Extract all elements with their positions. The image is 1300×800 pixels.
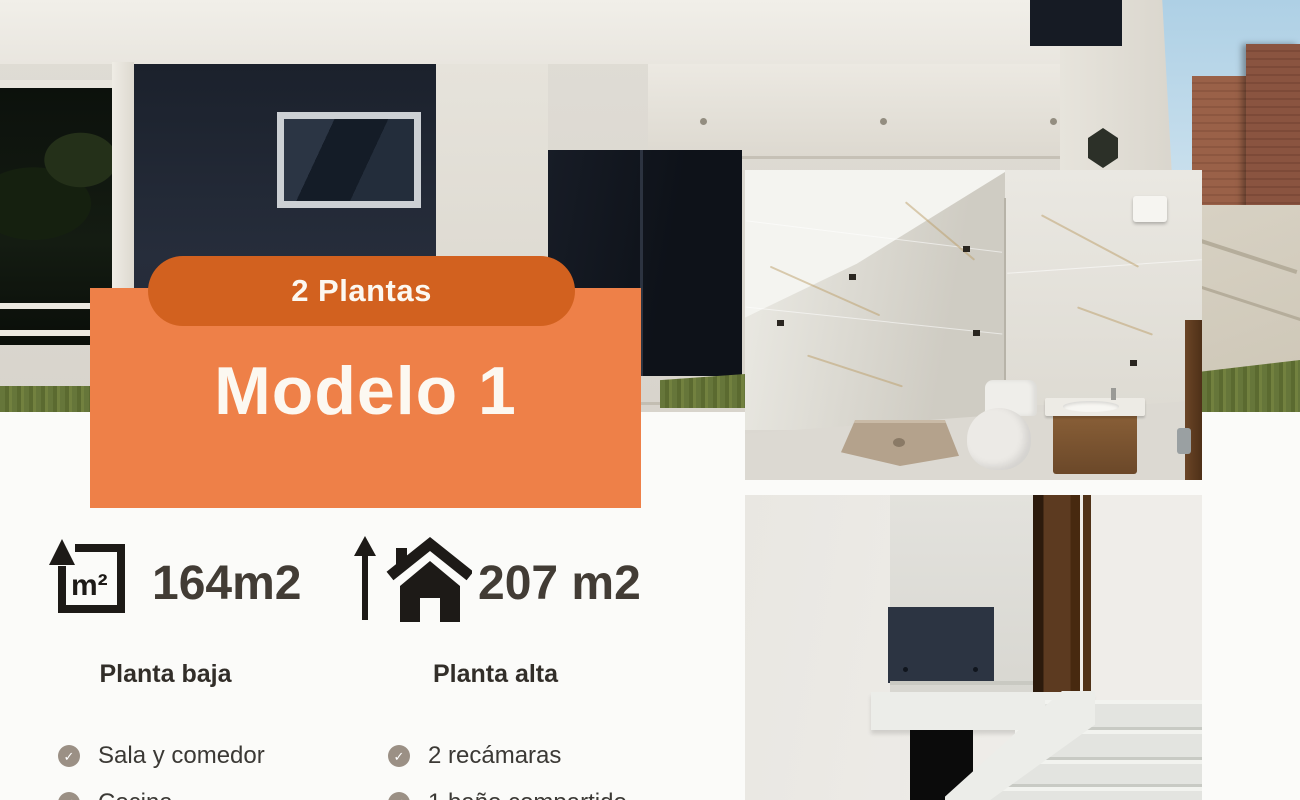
staircase-photo bbox=[745, 495, 1202, 800]
plumbing-stub bbox=[973, 330, 980, 336]
plumbing-stub bbox=[963, 246, 970, 252]
upper-floor-heading: Planta alta bbox=[418, 660, 573, 689]
light-switch bbox=[1133, 196, 1167, 222]
facade-window bbox=[277, 112, 421, 208]
sink-basin bbox=[1063, 401, 1119, 412]
outlet bbox=[973, 667, 978, 672]
shower-drain bbox=[893, 438, 905, 447]
check-circle-icon: ✓ bbox=[58, 745, 80, 767]
ground-floor-heading: Planta baja bbox=[88, 660, 243, 689]
stair-step bbox=[973, 787, 1202, 800]
outlet bbox=[903, 667, 908, 672]
wood-door-frame bbox=[1083, 495, 1091, 691]
soffit-light bbox=[700, 118, 707, 125]
check-glyph: ✓ bbox=[64, 750, 75, 763]
marble-wall-right bbox=[1005, 170, 1202, 405]
check-circle-icon: ✓ bbox=[388, 745, 410, 767]
check-glyph: ✓ bbox=[64, 797, 75, 800]
check-glyph: ✓ bbox=[394, 750, 405, 763]
bathroom-photo bbox=[745, 170, 1202, 480]
floors-badge: 2 Plantas bbox=[148, 256, 575, 326]
plumbing-stub bbox=[849, 274, 856, 280]
house-eave bbox=[0, 0, 1188, 64]
soffit-light bbox=[880, 118, 887, 125]
brick-building bbox=[1246, 44, 1300, 210]
floors-badge-label: 2 Plantas bbox=[291, 273, 432, 309]
landing-floor-edge bbox=[890, 681, 1053, 685]
list-item-label: Cocina bbox=[98, 789, 173, 800]
check-circle-icon: ✓ bbox=[388, 792, 410, 800]
plumbing-stub bbox=[1130, 360, 1137, 366]
list-item-label: 2 recámaras bbox=[428, 742, 561, 770]
m2-square-arrow-icon: m² bbox=[44, 536, 132, 620]
real-estate-flyer: 2 Plantas Modelo 1 m² 164m2 207 m2 Plant… bbox=[0, 0, 1300, 800]
wall-corner bbox=[1004, 198, 1006, 408]
toilet bbox=[967, 408, 1031, 470]
wood-door bbox=[1033, 495, 1080, 695]
soffit-light bbox=[1050, 118, 1057, 125]
water-valve bbox=[1177, 428, 1191, 454]
vanity-cabinet bbox=[1053, 412, 1137, 474]
list-item-label: 1 baño compartido bbox=[428, 789, 627, 800]
upper-floor-area: 207 m2 bbox=[478, 556, 641, 611]
list-item: ✓ 2 recámaras bbox=[388, 742, 561, 770]
plumbing-stub bbox=[777, 320, 784, 326]
upper-window bbox=[1030, 0, 1122, 46]
model-title: Modelo 1 bbox=[90, 352, 641, 430]
list-item-label: Sala y comedor bbox=[98, 742, 265, 770]
svg-text:m²: m² bbox=[71, 569, 108, 602]
list-item: ✓ Sala y comedor bbox=[58, 742, 265, 770]
check-glyph: ✓ bbox=[394, 797, 405, 800]
grass bbox=[660, 374, 745, 408]
arrow-house-icon bbox=[350, 534, 472, 624]
railing-bar bbox=[0, 303, 100, 309]
list-item: ✓ 1 baño compartido bbox=[388, 789, 627, 800]
door-jamb bbox=[1185, 320, 1202, 480]
window-frame bbox=[0, 80, 112, 88]
faucet bbox=[1111, 388, 1116, 400]
ground-floor-area: 164m2 bbox=[152, 556, 301, 611]
check-circle-icon: ✓ bbox=[58, 792, 80, 800]
list-item: ✓ Cocina bbox=[58, 789, 173, 800]
